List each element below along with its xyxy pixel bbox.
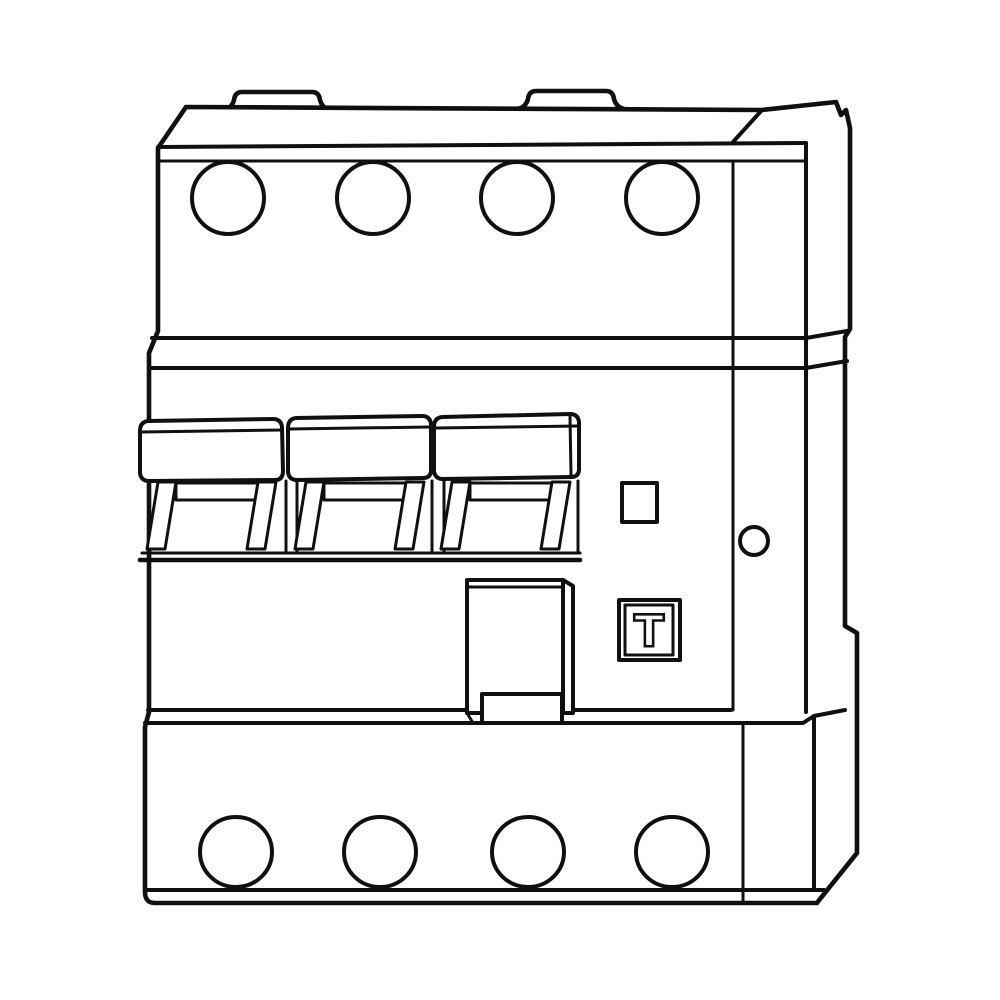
test-button: T xyxy=(619,600,680,660)
toggle-1-crossbar xyxy=(176,483,258,500)
illustration-canvas: T xyxy=(0,0,1000,1000)
toggle-3-head-right-edge xyxy=(570,417,571,475)
toggle-3-head xyxy=(434,414,579,479)
toggle-1-head-ridge xyxy=(141,430,282,432)
toggle-2-head-ridge xyxy=(289,427,430,429)
toggle-3-head-ridge xyxy=(435,426,578,428)
toggle-3-crossbar xyxy=(470,483,552,500)
label-window xyxy=(467,580,573,723)
toggle-2-head xyxy=(288,416,431,480)
toggle-1-head xyxy=(140,419,283,481)
housing-outline xyxy=(145,102,857,903)
circuit-breaker-line-drawing: T xyxy=(0,0,1000,1000)
test-button-label: T xyxy=(634,606,664,657)
mounting-tab-right xyxy=(518,91,624,109)
label-window-latch xyxy=(482,694,562,723)
toggle-2-crossbar xyxy=(324,483,406,500)
